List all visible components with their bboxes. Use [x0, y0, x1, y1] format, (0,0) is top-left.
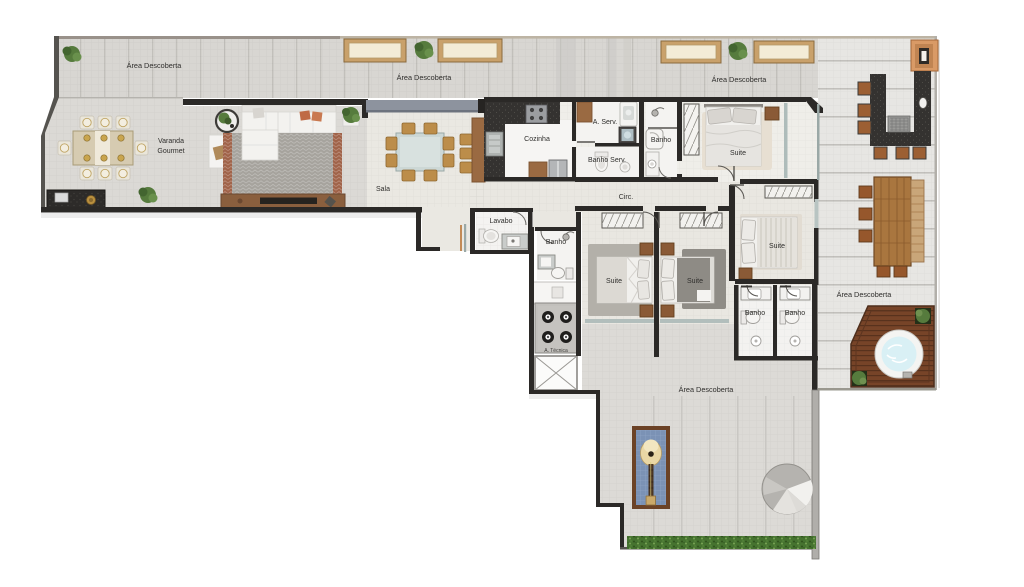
svg-text:Cozinha: Cozinha	[524, 136, 550, 143]
svg-text:Banho: Banho	[546, 239, 566, 246]
svg-text:Banho Serv.: Banho Serv.	[588, 157, 626, 164]
svg-text:Área Descoberta: Área Descoberta	[127, 61, 183, 70]
svg-text:Suite: Suite	[769, 243, 785, 250]
svg-text:Banho: Banho	[745, 310, 765, 317]
svg-text:Suite: Suite	[606, 278, 622, 285]
svg-text:Suite: Suite	[730, 150, 746, 157]
svg-text:Circ.: Circ.	[619, 194, 633, 201]
svg-text:Área Descoberta: Área Descoberta	[712, 75, 768, 84]
svg-text:Varanda: Varanda	[158, 138, 184, 145]
svg-text:Área Descoberta: Área Descoberta	[837, 290, 893, 299]
svg-text:Gourmet: Gourmet	[157, 148, 184, 155]
svg-text:Suite: Suite	[687, 278, 703, 285]
svg-text:Lavabo: Lavabo	[490, 218, 513, 225]
svg-text:Banho: Banho	[785, 310, 805, 317]
svg-text:Banho: Banho	[651, 137, 671, 144]
svg-text:A. Técnica: A. Técnica	[544, 348, 568, 354]
svg-text:Área Descoberta: Área Descoberta	[397, 73, 453, 82]
svg-text:Sala: Sala	[376, 186, 390, 193]
svg-text:Área Descoberta: Área Descoberta	[679, 385, 735, 394]
svg-text:A. Serv.: A. Serv.	[593, 119, 617, 126]
